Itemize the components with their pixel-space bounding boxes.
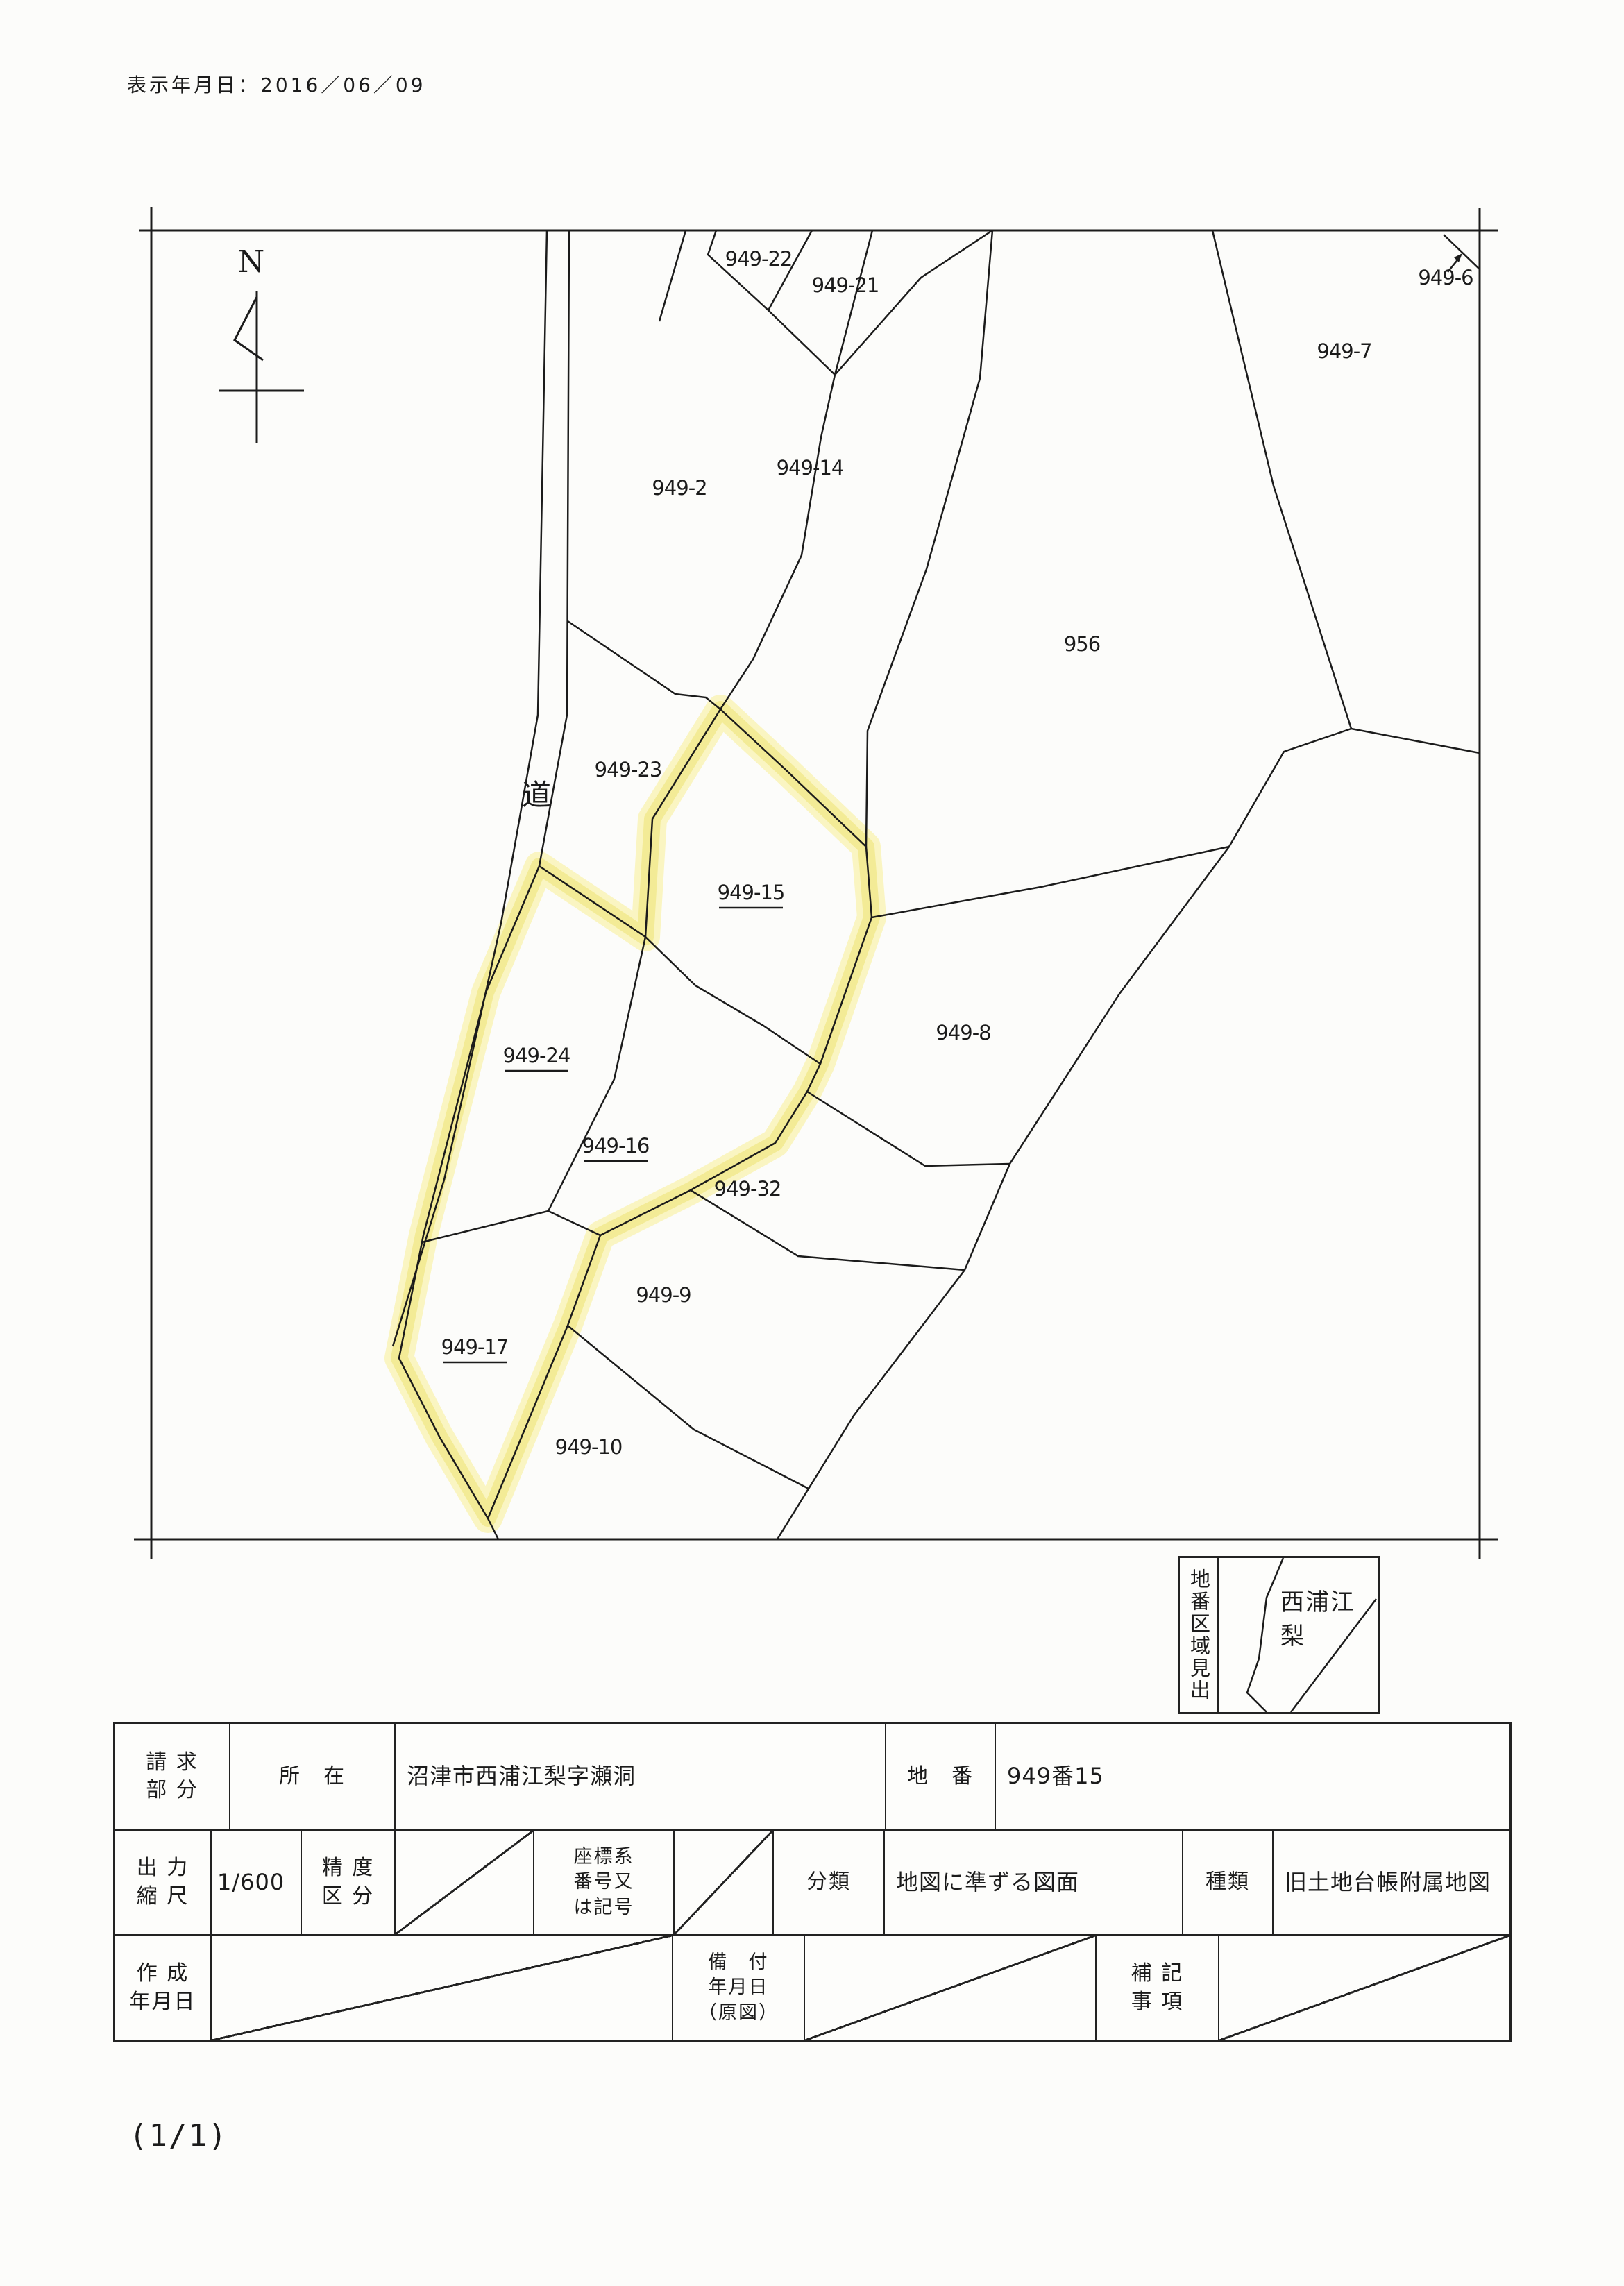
parcel-label-949-21: 949-21	[812, 273, 879, 297]
area-index-sketch: 西浦江梨	[1219, 1558, 1378, 1712]
coord-system-value-blank	[673, 1831, 772, 1934]
classification-header: 分類	[772, 1831, 883, 1934]
type-value: 旧土地台帳附属地図	[1272, 1831, 1509, 1934]
parcel-label-949-14: 949-14	[777, 456, 844, 480]
parcel-label-949-17: 949-17	[441, 1335, 509, 1359]
parcel-label-949-7: 949-7	[1317, 339, 1371, 363]
scale-header: 出 力 縮 尺	[115, 1831, 210, 1934]
lot-number-value: 949番15	[995, 1724, 1509, 1829]
parcel-label-949-9: 949-9	[636, 1283, 691, 1307]
request-part-header: 請 求 部 分	[115, 1724, 229, 1829]
area-index-title: 地番区域見出	[1189, 1568, 1209, 1702]
lot-number-header: 地 番	[885, 1724, 995, 1829]
table-row-scale: 出 力 縮 尺 1/600 精 度 区 分 座標系 番号又 は記号 分類 地図に…	[115, 1829, 1509, 1934]
parcel-label-949-32: 949-32	[714, 1177, 781, 1201]
area-index-box: 地番区域見出 西浦江梨	[1178, 1556, 1380, 1714]
parcel-label-949-10: 949-10	[555, 1435, 623, 1459]
north-arrow-icon	[219, 291, 304, 443]
parcel-label-949-15: 949-15	[718, 881, 785, 904]
page-indicator: (1/1)	[129, 2118, 228, 2153]
parcel-label-949-24: 949-24	[503, 1044, 570, 1067]
cadastral-map-document: { "page": { "date_label": "表示年月日：2016／06…	[0, 0, 1624, 2286]
document-info-table: 請 求 部 分 所 在 沼津市西浦江梨字瀬洞 地 番 949番15 出 力 縮 …	[113, 1722, 1512, 2042]
north-label: N	[238, 244, 265, 280]
parcel-label-949-22: 949-22	[725, 247, 793, 271]
location-header: 所 在	[229, 1724, 394, 1829]
filed-date-header: 備 付 年月日 （原図）	[672, 1936, 804, 2040]
coord-system-header: 座標系 番号又 は記号	[533, 1831, 673, 1934]
road-edge-right	[539, 230, 569, 866]
parcel-label-949-2: 949-2	[652, 476, 707, 500]
table-row-location: 請 求 部 分 所 在 沼津市西浦江梨字瀬洞 地 番 949番15	[115, 1724, 1509, 1829]
parcel-label-949-6: 949-6	[1418, 266, 1473, 289]
created-date-header: 作 成 年月日	[115, 1936, 210, 2040]
parcel-label-949-23: 949-23	[595, 758, 662, 781]
accuracy-value-blank	[394, 1831, 533, 1934]
created-date-value-blank	[210, 1936, 672, 2040]
location-value: 沼津市西浦江梨字瀬洞	[394, 1724, 885, 1829]
notes-value-blank	[1218, 1936, 1509, 2040]
parcel-label-949-16: 949-16	[582, 1134, 650, 1158]
scale-value: 1/600	[210, 1831, 301, 1934]
filed-date-value-blank	[804, 1936, 1095, 2040]
parcel-label-949-8: 949-8	[936, 1021, 990, 1044]
type-header: 種類	[1182, 1831, 1272, 1934]
map-frame	[134, 207, 1498, 1559]
area-index-area-label: 西浦江梨	[1280, 1583, 1378, 1651]
highlight-band	[399, 709, 872, 1518]
road-label: 道	[522, 778, 551, 812]
accuracy-header: 精 度 区 分	[301, 1831, 394, 1934]
parcel-label-956: 956	[1064, 632, 1100, 656]
notes-header: 補 記 事 項	[1095, 1936, 1218, 2040]
area-index-title-cell: 地番区域見出	[1180, 1558, 1219, 1712]
table-row-dates: 作 成 年月日 備 付 年月日 （原図） 補 記 事 項	[115, 1934, 1509, 2040]
classification-value: 地図に準ずる図面	[883, 1831, 1182, 1934]
